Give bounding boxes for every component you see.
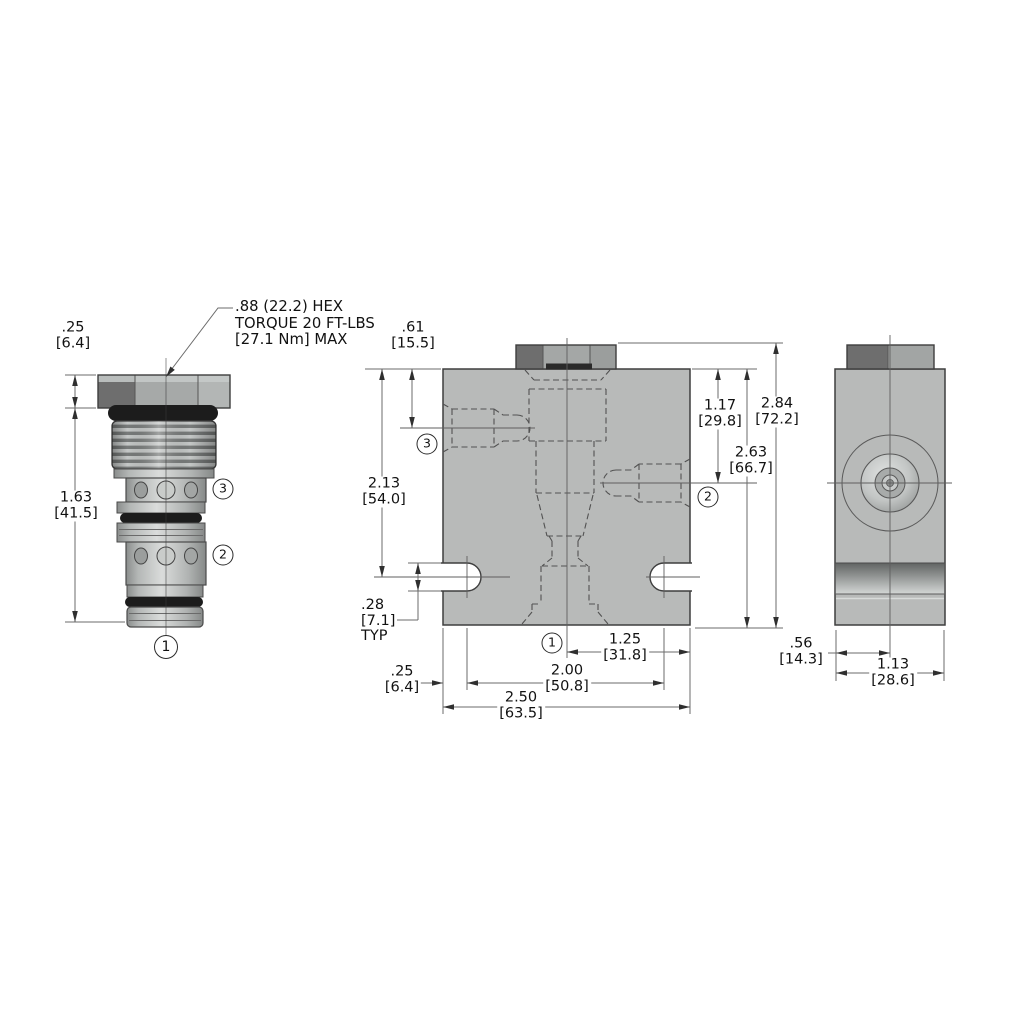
dim-port2-center-depth: 1.17 [29.8]: [696, 399, 744, 430]
port-label-1-cartridge: 1: [154, 635, 178, 659]
dim-body-width: 2.50 [63.5]: [497, 691, 545, 722]
hex-washer: [546, 364, 592, 370]
port-label-2-cartridge: 2: [213, 545, 234, 566]
cartridge-side-view: [98, 358, 230, 636]
o-ring-top: [108, 405, 218, 421]
callout-line: .88 (22.2) HEX: [235, 298, 343, 315]
dim-slot-spacing: 2.00 [50.8]: [543, 664, 591, 695]
dim-edge-to-slot: .25 [6.4]: [383, 665, 421, 696]
dim-body-depth: 1.13 [28.6]: [869, 658, 917, 689]
port-label-1-body: 1: [542, 633, 563, 654]
ridge-rings: [117, 523, 205, 542]
cross-hole: [185, 482, 198, 498]
body-side-view: [827, 335, 952, 658]
dim-overall-height: 2.84 [72.2]: [753, 397, 801, 428]
callout-line: [27.1 Nm] MAX: [235, 331, 347, 348]
drawing-page: .88 (22.2) HEX TORQUE 20 FT-LBS [27.1 Nm…: [0, 0, 1024, 1024]
hex-nut-side: [847, 345, 934, 369]
callout-line: TORQUE 20 FT-LBS: [235, 315, 375, 332]
technical-drawing-canvas: [0, 0, 1024, 1024]
thread-section: [112, 421, 216, 469]
dim-body-height: 2.63 [66.7]: [727, 446, 775, 477]
o-ring-bottom: [125, 597, 203, 607]
dim-cartridge-length: 1.63 [41.5]: [52, 491, 100, 522]
cross-hole: [135, 482, 148, 498]
port-label-3-body: 3: [417, 434, 438, 455]
port-label-3-cartridge: 3: [213, 479, 234, 500]
hex-nut-front: [516, 345, 616, 370]
hex-torque-callout: .88 (22.2) HEX TORQUE 20 FT-LBS [27.1 Nm…: [235, 299, 375, 349]
dim-hex-height: .25 [6.4]: [54, 321, 92, 352]
collar: [117, 502, 205, 513]
dim-center-to-edge: 1.25 [31.8]: [601, 633, 649, 664]
bottom-flange: [127, 585, 203, 597]
thread-relief-ring: [114, 469, 214, 478]
cross-hole: [135, 548, 148, 564]
cross-hole: [185, 548, 198, 564]
dim-port3-center-depth: .61 [15.5]: [389, 321, 437, 352]
nose-rings: [127, 607, 203, 627]
dim-slot-center-depth: 2.13 [54.0]: [360, 477, 408, 508]
port-label-2-body: 2: [698, 487, 719, 508]
dim-edge-to-centerline: .56 [14.3]: [777, 637, 825, 668]
hex-nut: [98, 375, 230, 408]
dim-slot-width: .28 [7.1] TYP: [359, 598, 397, 645]
o-ring-middle: [120, 513, 202, 523]
